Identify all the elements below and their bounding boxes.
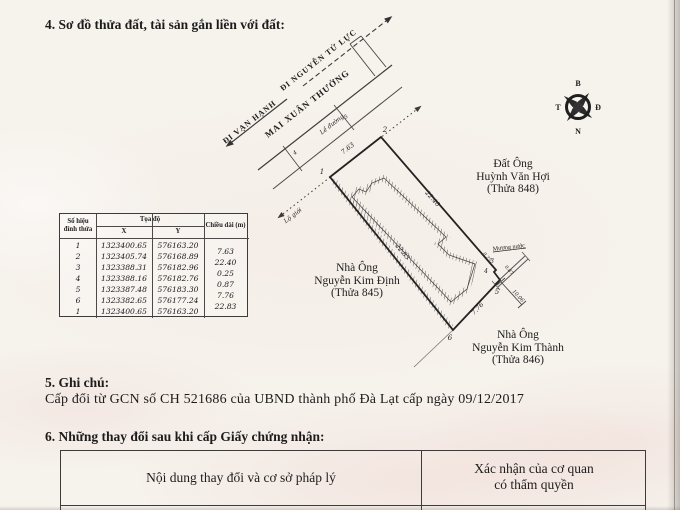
compass-south-label: N — [575, 127, 581, 136]
changes-col2-header: Xác nhận của cơ quan có thẩm quyền — [422, 461, 646, 493]
neighbor-parcel-848: Đất Ông Huỳnh Văn Hợi (Thửa 848) — [476, 158, 550, 196]
coord-x: 1323388.31 — [96, 263, 152, 272]
coord-x: 1323400.65 — [96, 241, 152, 250]
section5-title: 5. Ghi chú: — [45, 375, 109, 391]
branch-length: 10.06 — [510, 289, 525, 304]
scan-edge-line — [674, 0, 675, 510]
coord-x: 1323382.65 — [96, 296, 152, 305]
road-boundary-label: Lộ giới — [282, 207, 304, 226]
vertex-id: 6 — [60, 296, 96, 305]
street-edge-line — [258, 65, 392, 170]
coord-y: 576163.20 — [152, 241, 204, 250]
neighbor-parcel-846: Nhà Ông Nguyễn Kim Thành (Thửa 846) — [472, 329, 564, 367]
compass-east-label: Đ — [595, 103, 601, 112]
coord-x: 1323405.74 — [96, 252, 152, 261]
tick-label: 4 — [291, 149, 299, 157]
header-coord: Tọa độ — [96, 216, 204, 224]
coord-x: 1323388.16 — [96, 274, 152, 283]
header-x: X — [96, 228, 152, 236]
header-vertex: Số hiệu đỉnh thửa — [60, 218, 96, 235]
scanned-land-certificate-page: 4. Sơ đồ thửa đất, tài sản gắn liền với … — [0, 0, 680, 510]
vertex-1: 1 — [320, 168, 324, 176]
vertex-4: 4 — [483, 268, 488, 275]
section5-body: Cấp đổi từ GCN số CH 521686 của UBND thà… — [45, 392, 645, 408]
coord-y: 576163.20 — [152, 307, 204, 316]
segment-length: 22.83 — [204, 302, 247, 311]
compass-north-label: B — [575, 79, 581, 88]
changes-col1-header: Nội dung thay đổi và cơ sở pháp lý — [61, 470, 421, 486]
coord-y: 576183.30 — [152, 285, 204, 294]
vertex-5: 5 — [495, 288, 500, 296]
vertex-6: 6 — [448, 334, 453, 342]
vertex-3: 3 — [490, 258, 494, 265]
vertex-id: 4 — [60, 274, 96, 283]
segment-length: 0.25 — [204, 269, 247, 278]
section6-title: 6. Những thay đổi sau khi cấp Giấy chứng… — [45, 429, 325, 445]
roadside-label: Lề đường — [317, 112, 345, 137]
road-width-tick — [283, 146, 302, 171]
vertex-id: 3 — [60, 263, 96, 272]
header-y: Y — [152, 228, 204, 236]
coord-x: 1323400.65 — [96, 307, 152, 316]
changes-table: Nội dung thay đổi và cơ sở pháp lý Xác n… — [60, 450, 646, 510]
water-channel-tick — [522, 252, 530, 261]
segment-length: 7.63 — [204, 247, 247, 256]
vertex-id: 5 — [60, 285, 96, 294]
compass-west-label: T — [555, 103, 561, 112]
segment-length: 7.76 — [204, 291, 247, 300]
coord-x: 1323387.48 — [96, 285, 152, 294]
scan-bottom-shadow — [0, 506, 680, 510]
edge-length-1-2: 7.63 — [340, 141, 356, 156]
segment-length: 0.87 — [204, 280, 247, 289]
coord-y: 576168.89 — [152, 252, 204, 261]
compass-rose: B Đ N T — [555, 79, 601, 136]
vertex-id: 1 — [60, 241, 96, 250]
coord-y: 576182.96 — [152, 263, 204, 272]
edge-length-5-6: 7.76 — [470, 301, 486, 317]
coord-y: 576182.76 — [152, 274, 204, 283]
segment-length: 22.40 — [204, 258, 247, 267]
vertex-2: 2 — [382, 126, 388, 134]
vertex-id: 2 — [60, 252, 96, 261]
header-length: Chiều dài (m) — [204, 222, 247, 230]
neighbor-parcel-845: Nhà Ông Nguyễn Kim Định (Thửa 845) — [314, 262, 400, 300]
edge-length-2-3: 22.40 — [423, 188, 442, 208]
vertex-id: 1 — [60, 307, 96, 316]
coordinate-table: Số hiệu đỉnh thửa Tọa độ X Y Chiều dài (… — [59, 213, 248, 317]
parcel-boundary — [330, 137, 500, 330]
coord-y: 576177.24 — [152, 296, 204, 305]
road-label-nguyen-tu-luc: ĐI NGUYỄN TỬ LỰC — [278, 27, 359, 93]
arrowhead — [414, 104, 423, 112]
